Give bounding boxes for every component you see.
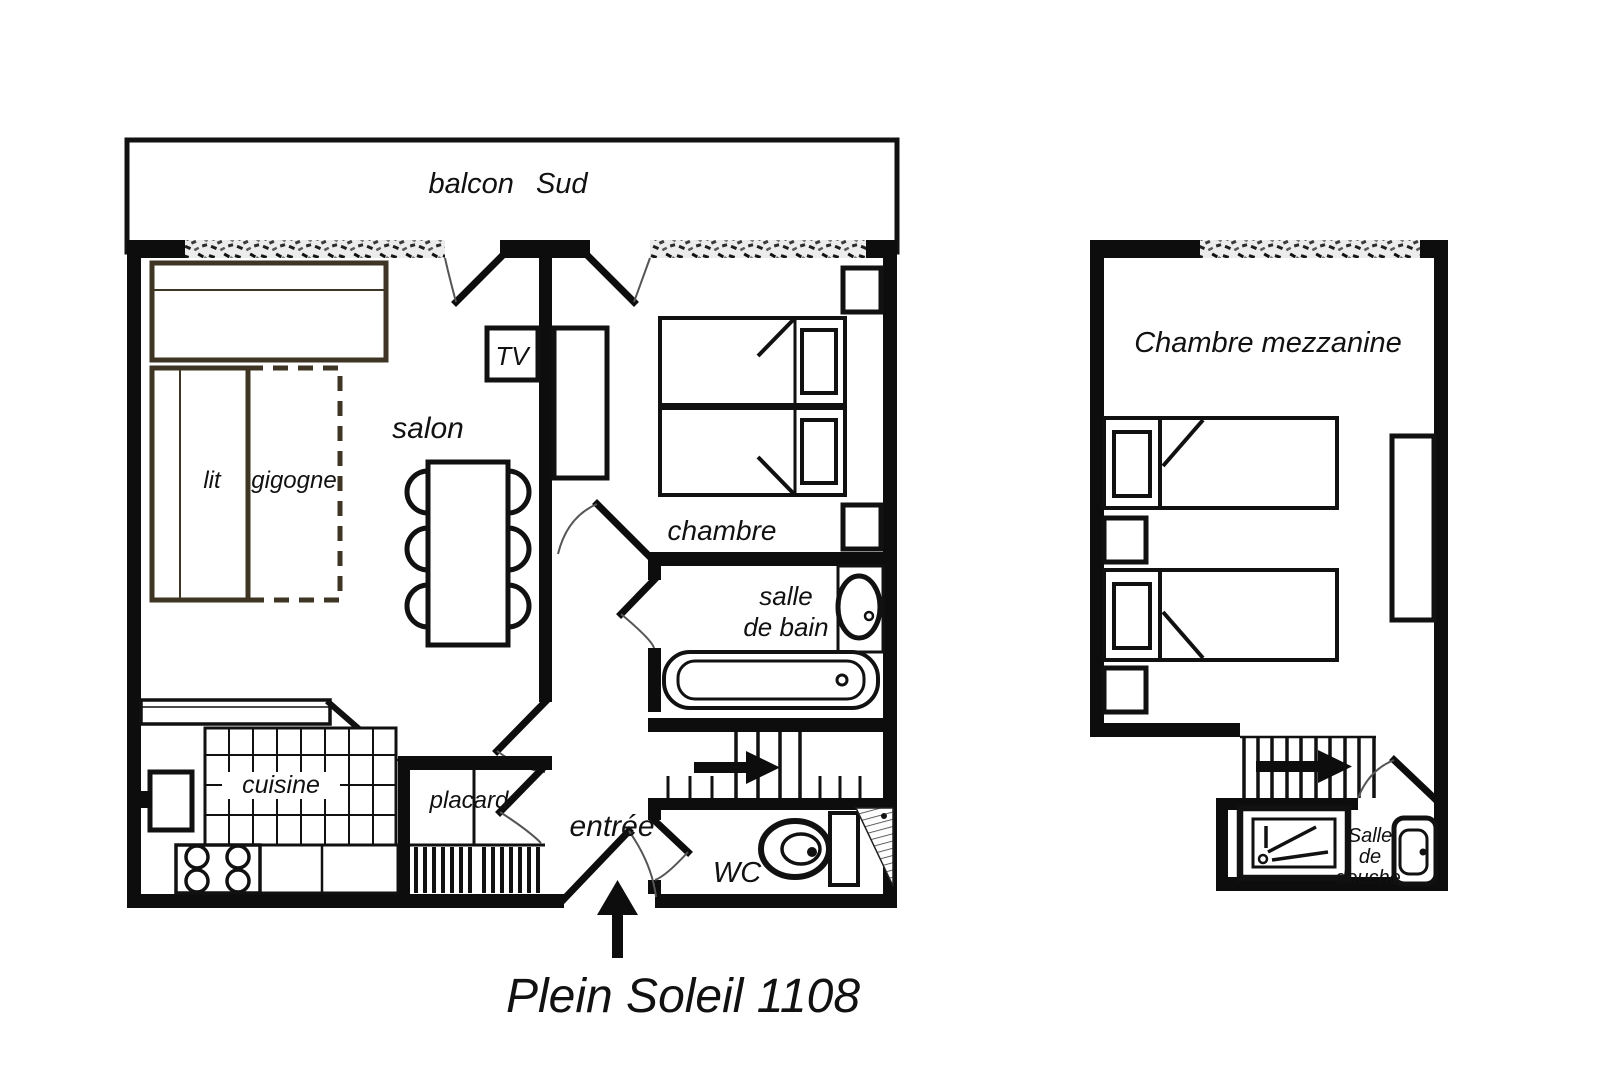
floor-plan-page: balcon Sud <box>0 0 1620 1080</box>
main-floor-plan: balcon Sud <box>127 140 897 958</box>
fridge <box>150 772 192 830</box>
placard-area: placard <box>398 756 552 894</box>
mezz-wardrobe <box>1392 436 1434 620</box>
tv-label: TV <box>495 341 531 371</box>
shower-room-label-line3: douche <box>1335 867 1401 889</box>
entrance-arrow-icon <box>597 880 638 958</box>
entrance-label: entrée <box>569 810 654 843</box>
chambre-label: chambre <box>668 515 777 546</box>
balcony-door-left-leaf <box>456 258 500 302</box>
staircase-mezzanine <box>1240 737 1376 798</box>
kitchen-counter-bottom <box>260 845 398 893</box>
mezz-nightstand-1 <box>1104 518 1146 562</box>
wc-area: WC <box>713 808 893 889</box>
bathroom-door-leaf <box>621 580 654 614</box>
mezzanine-beds <box>1104 418 1434 712</box>
dining-table <box>428 462 508 645</box>
page-title: Plein Soleil 1108 <box>506 970 860 1023</box>
wc-label: WC <box>713 857 762 889</box>
mezz-bed-1-pillow <box>1114 432 1150 496</box>
balcony-door-opening-right <box>590 238 650 259</box>
wc-door-leaf <box>654 820 688 852</box>
balcony-door-opening-left <box>445 238 500 259</box>
wc-corner-hatch <box>856 808 893 886</box>
kitchen-table: cuisine <box>205 728 396 845</box>
window-band-right <box>650 240 866 258</box>
trundle-bed-label-gigogne: gigogne <box>251 467 336 494</box>
chambre-bottom-wall <box>648 552 897 566</box>
staircase-main <box>668 732 860 798</box>
mezzanine-window-band <box>1200 240 1420 258</box>
salon-label: salon <box>392 412 464 445</box>
placard-grill <box>416 847 538 893</box>
sideboard <box>554 328 607 478</box>
bed-1-pillow <box>802 330 836 393</box>
nightstand-top <box>843 268 881 312</box>
mezzanine-floor-plan: Chambre mezzanine <box>1090 240 1448 891</box>
kitchen-counter-top <box>141 700 330 724</box>
balcony-door-right-leaf <box>590 258 634 302</box>
stove <box>176 845 260 893</box>
kitchen-area: cuisine <box>141 700 398 893</box>
mezz-bed-1 <box>1160 418 1337 508</box>
salon-area: lit gigogne salon TV <box>152 263 538 645</box>
shower-tray <box>1240 808 1348 878</box>
nightstand-bottom <box>843 505 881 549</box>
washbasin <box>838 576 880 638</box>
bed-2-pillow <box>802 420 836 483</box>
kitchen-label: cuisine <box>242 771 320 799</box>
mezz-bed-2 <box>1160 570 1337 660</box>
placard-label: placard <box>429 787 509 814</box>
mezz-bed-2-pillow <box>1114 584 1150 648</box>
shower-room-label-line2: de <box>1359 846 1381 868</box>
trundle-bed <box>152 368 248 600</box>
balcony-label: balcon Sud <box>428 168 588 200</box>
mezz-nightstand-2 <box>1104 668 1146 712</box>
mezzanine-bedroom-label: Chambre mezzanine <box>1134 327 1402 359</box>
bathroom-area: salle de bain <box>664 566 883 708</box>
shower-room-label-line1: Salle <box>1348 825 1392 847</box>
floor-plan-drawing: balcon Sud <box>0 0 1620 1080</box>
shower-room-door-leaf <box>1394 760 1434 798</box>
window-band-left <box>185 240 445 258</box>
chambre-door-leaf <box>597 504 650 557</box>
salon-chambre-divider-wall <box>539 256 552 702</box>
shower-room-area: Salle de douche <box>1240 760 1436 889</box>
salon-door-leaf <box>497 702 545 751</box>
toilet-tank <box>830 813 858 885</box>
sofa <box>152 263 386 360</box>
bathroom-label-line1: salle <box>759 581 812 611</box>
bathroom-label-line2: de bain <box>743 612 828 642</box>
trundle-bed-label-lit: lit <box>203 467 222 494</box>
